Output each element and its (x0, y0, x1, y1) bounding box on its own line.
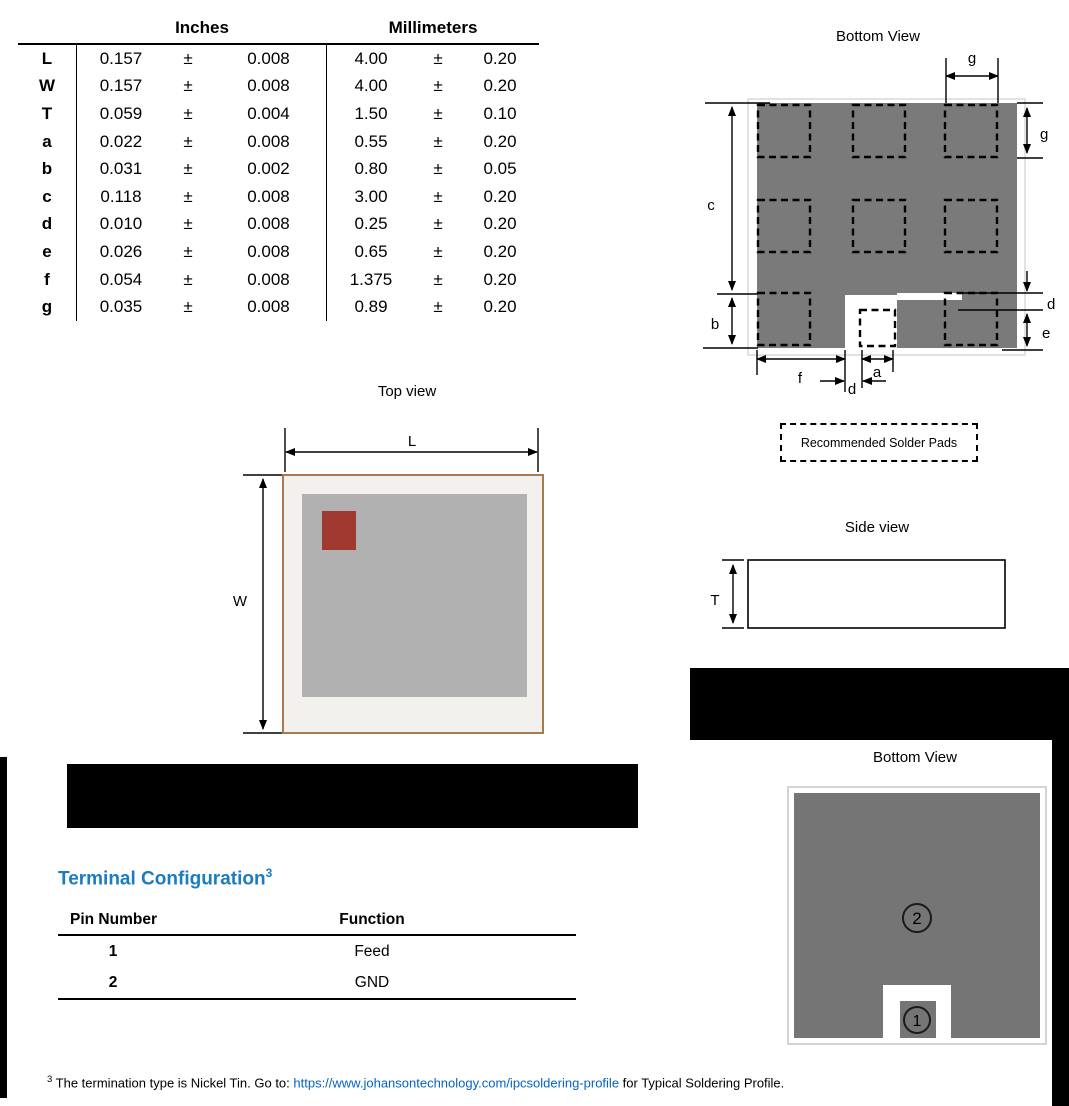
dim-label-d-bottom: d (848, 381, 856, 398)
pin-2-number: 2 (912, 909, 921, 928)
soldering-profile-link[interactable]: https://www.johansontechnology.com/ipcso… (293, 1075, 619, 1090)
pins-bottom-view: Bottom View 2 1 (788, 749, 1046, 1044)
pin-table-bottom-rule (58, 998, 576, 1000)
pins-view-title: Bottom View (873, 749, 957, 766)
dim-label-c: c (707, 197, 715, 214)
function-header: Function (168, 905, 576, 934)
dim-label-d-right: d (1047, 296, 1055, 313)
redaction-bar (67, 764, 638, 828)
dim-label-T: T (710, 592, 719, 609)
gap-slot (897, 293, 962, 300)
feed-notch (845, 295, 897, 348)
table-row: 2 GND (58, 967, 576, 998)
top-view: Top view L W (233, 383, 543, 733)
pin-number-cell: 1 (58, 936, 168, 967)
datasheet-page: Inches Millimeters L 0.157 ± 0.008 4.00 … (0, 0, 1069, 1106)
redaction-strip (1052, 735, 1069, 1106)
pin-1-number: 1 (913, 1013, 922, 1030)
pin-number-header: Pin Number (58, 905, 168, 934)
footnote-reference: 3 (266, 866, 273, 880)
redaction-strip (0, 757, 7, 1098)
pads-bottom-view: Bottom View (703, 28, 1055, 398)
dim-label-b: b (711, 316, 719, 333)
dim-label-a: a (873, 364, 882, 381)
function-cell: GND (168, 967, 576, 998)
pads-view-title: Bottom View (836, 28, 920, 45)
dim-label-g-top: g (968, 50, 976, 67)
solder-pads-note: Recommended Solder Pads (780, 423, 978, 462)
side-view-title: Side view (845, 519, 909, 536)
footnote-text-before: The termination type is Nickel Tin. Go t… (52, 1075, 293, 1090)
solder-pads-note-label: Recommended Solder Pads (801, 436, 957, 450)
dim-label-f: f (798, 370, 803, 387)
pin-table-header: Pin Number Function (58, 905, 576, 936)
pin-table: Pin Number Function 1 Feed 2 GND (58, 905, 576, 1000)
dim-label-W: W (233, 593, 248, 610)
dim-label-e: e (1042, 325, 1050, 342)
side-view: Side view T (710, 519, 1005, 628)
chip-side-body (748, 560, 1005, 628)
function-cell: Feed (168, 936, 576, 967)
redaction-bar (690, 668, 1069, 740)
table-row: 1 Feed (58, 936, 576, 967)
footnote-text-after: for Typical Soldering Profile. (619, 1075, 784, 1090)
pin-number-cell: 2 (58, 967, 168, 998)
terminal-configuration-title: Terminal Configuration (58, 868, 266, 889)
orientation-mark (322, 511, 356, 550)
footnote: 3 The termination type is Nickel Tin. Go… (47, 1074, 784, 1090)
terminal-configuration-heading: Terminal Configuration3 (58, 866, 272, 890)
dim-label-g-right: g (1040, 126, 1048, 143)
dim-label-L: L (408, 433, 416, 450)
top-view-title: Top view (378, 383, 437, 400)
